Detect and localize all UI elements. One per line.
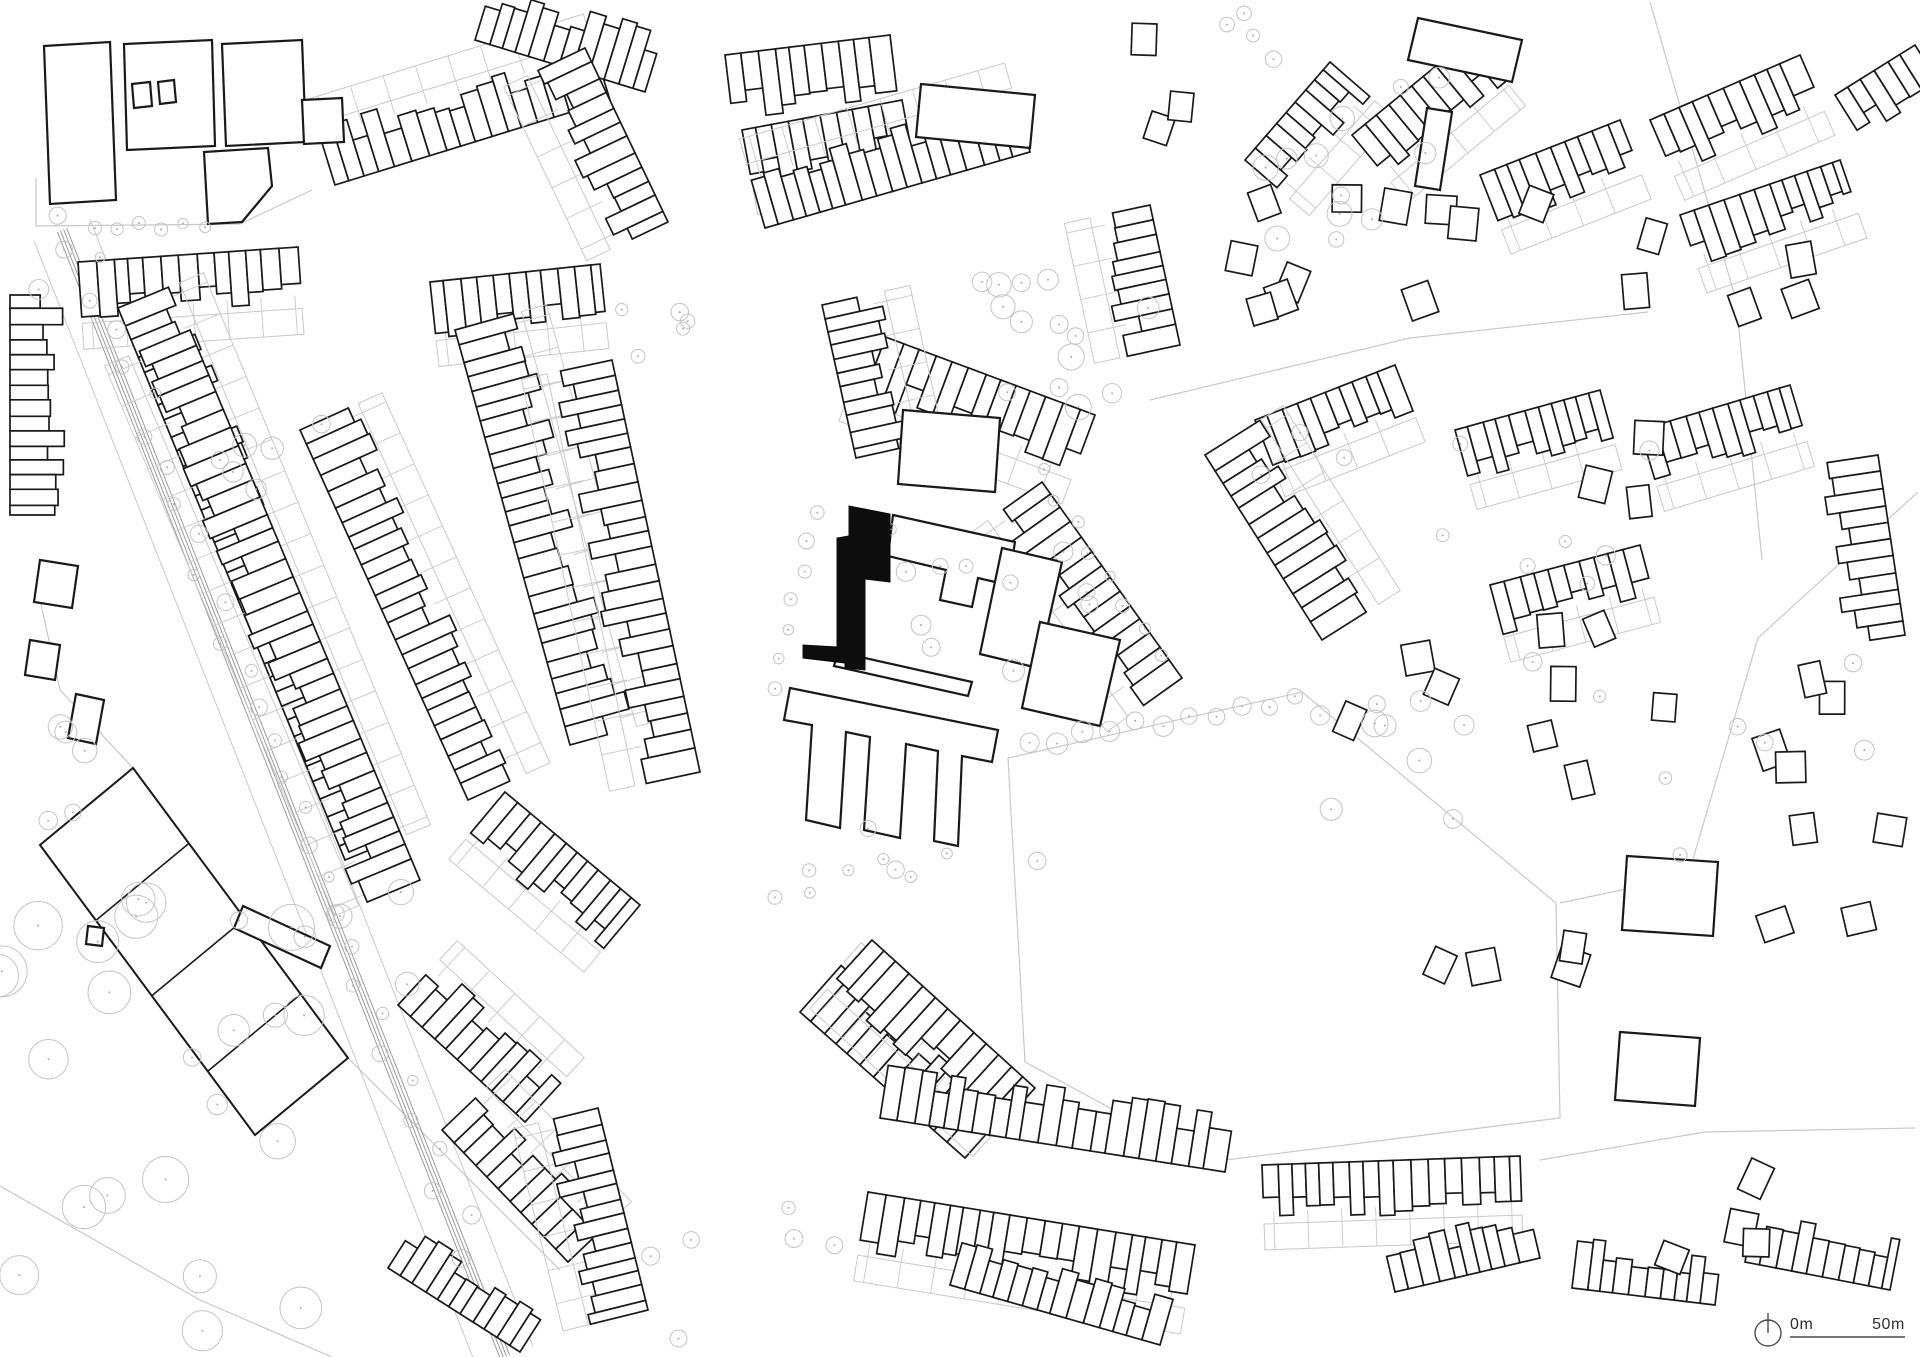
garden-divider	[1642, 588, 1652, 625]
site-building-layer	[803, 506, 890, 670]
tree-center-dot	[277, 1140, 279, 1142]
tree-center-dot	[1664, 777, 1666, 779]
garden-divider	[863, 1243, 869, 1282]
house	[1652, 693, 1677, 722]
tree-center-dot	[1294, 695, 1296, 697]
tree-center-dot	[63, 249, 65, 251]
garden-divider	[1375, 420, 1389, 456]
house	[260, 248, 281, 290]
house	[1841, 902, 1876, 937]
scale-start-label: 0m	[1790, 1316, 1813, 1333]
house	[1411, 1159, 1430, 1206]
tree-center-dot	[690, 1239, 692, 1241]
garden-divider	[295, 296, 298, 335]
garden-divider	[350, 86, 362, 124]
tree-center-dot	[790, 598, 792, 600]
garden-divider	[567, 201, 603, 218]
tree-center-dot	[352, 985, 354, 987]
terrace-row	[1680, 160, 1867, 293]
tree-center-dot	[1764, 742, 1766, 744]
tree-center-dot	[1056, 743, 1058, 745]
terrace-row	[10, 295, 64, 515]
house	[1248, 184, 1282, 221]
house	[1738, 1158, 1775, 1199]
tree-center-dot	[1852, 662, 1854, 664]
tree-center-dot	[1605, 554, 1607, 556]
tree-center-dot	[1286, 158, 1288, 160]
tree-center-dot	[232, 471, 234, 473]
tree-center-dot	[300, 1307, 302, 1309]
house	[10, 385, 48, 399]
house	[1637, 218, 1667, 255]
tree-center-dot	[920, 624, 922, 626]
tree-center-dot	[65, 731, 67, 733]
tree-center-dot	[774, 896, 776, 898]
garden-divider	[505, 742, 541, 758]
garden-divider	[1274, 1211, 1275, 1250]
house	[1401, 640, 1435, 676]
garden-divider	[420, 557, 456, 573]
garden-divider	[1506, 214, 1520, 250]
tree-center-dot	[787, 629, 789, 631]
tree-center-dot	[778, 658, 780, 660]
tree-center-dot	[1088, 603, 1090, 605]
tree-center-dot	[1335, 238, 1337, 240]
house	[10, 308, 63, 324]
house	[1393, 1160, 1413, 1211]
terrace-row	[1387, 1223, 1540, 1292]
tree-center-dot	[1109, 730, 1111, 732]
parcel-line	[0, 1186, 332, 1357]
house	[1776, 751, 1806, 783]
tree-center-dot	[47, 820, 49, 822]
house	[1494, 1156, 1511, 1202]
tree-icon	[0, 954, 19, 997]
large-building	[222, 40, 306, 146]
garden-divider	[1308, 1210, 1309, 1249]
tree-center-dot	[1420, 700, 1422, 702]
tree-center-dot	[1081, 731, 1083, 733]
terrace-row	[1825, 455, 1905, 640]
terraced-housing-layer	[10, 0, 1920, 1352]
tree-center-dot	[682, 328, 684, 330]
tree-center-dot	[94, 227, 96, 229]
house	[10, 446, 48, 460]
tree-center-dot	[1002, 306, 1004, 308]
large-building	[784, 688, 998, 846]
garden-divider	[1803, 106, 1819, 142]
tree-center-dot	[328, 876, 330, 878]
tree-center-dot	[97, 941, 99, 943]
large-building	[1408, 18, 1522, 82]
tree-center-dot	[939, 565, 941, 567]
tree-center-dot	[930, 646, 932, 648]
tree-center-dot	[258, 706, 260, 708]
garden-divider	[1410, 1206, 1411, 1245]
garden-divider	[415, 66, 427, 104]
tree-center-dot	[116, 228, 118, 230]
tree-center-dot	[1679, 854, 1681, 856]
tree-center-dot	[1188, 715, 1190, 717]
tree-center-dot	[1077, 406, 1079, 408]
large-building	[916, 84, 1035, 148]
tree-center-dot	[135, 916, 137, 918]
tree-center-dot	[1043, 468, 1045, 470]
tree-center-dot	[382, 1012, 384, 1014]
large-building	[898, 410, 1000, 492]
tree-center-dot	[1418, 760, 1420, 762]
tree-center-dot	[173, 503, 175, 505]
tree-center-dot	[37, 925, 39, 927]
house	[1123, 324, 1180, 356]
tree-center-dot	[788, 1207, 790, 1209]
tree-center-dot	[1273, 58, 1275, 60]
large-building	[44, 42, 116, 204]
large-building	[132, 82, 152, 108]
tree-center-dot	[910, 876, 912, 878]
house	[1700, 1273, 1719, 1305]
house	[161, 255, 181, 293]
tree-center-dot	[905, 571, 907, 573]
tree-center-dot	[274, 1014, 276, 1016]
house	[1379, 188, 1412, 225]
house	[279, 247, 301, 285]
garden-divider	[261, 298, 264, 337]
large-building	[68, 694, 104, 744]
tree-center-dot	[1058, 323, 1060, 325]
tree-center-dot	[1400, 86, 1402, 88]
tree-center-dot	[1376, 703, 1378, 705]
garden-divider	[1695, 462, 1706, 499]
tree-center-dot	[1144, 628, 1146, 630]
house	[10, 355, 54, 370]
tree-center-dot	[233, 1029, 235, 1031]
house	[1428, 1159, 1446, 1204]
terrace-row	[725, 35, 897, 115]
garden-divider	[1832, 209, 1844, 245]
terrace-row	[1835, 45, 1920, 130]
tree-center-dot	[351, 946, 353, 948]
parcel-line	[1008, 692, 1560, 1162]
tree-center-dot	[216, 1104, 218, 1106]
house	[1363, 1161, 1380, 1197]
tree-center-dot	[687, 320, 689, 322]
garden-strip	[1064, 218, 1119, 363]
tree-center-dot	[145, 902, 147, 904]
house	[1131, 23, 1157, 55]
tree-center-dot	[1215, 716, 1217, 718]
house	[1461, 1157, 1480, 1204]
garden-divider	[1081, 291, 1119, 299]
terrace-row	[1640, 385, 1814, 511]
house	[1401, 280, 1438, 321]
tree-center-dot	[1863, 749, 1865, 751]
tree-center-dot	[677, 1338, 679, 1340]
tree-center-dot	[72, 811, 74, 813]
tree-center-dot	[379, 1053, 381, 1055]
tree-center-dot	[47, 1058, 49, 1060]
terrace-row	[1572, 1239, 1719, 1305]
house	[1756, 906, 1794, 943]
large-building	[1022, 622, 1120, 726]
garden-divider	[148, 454, 185, 469]
tree-center-dot	[18, 1274, 20, 1276]
tree-center-dot	[1252, 35, 1254, 37]
tree-center-dot	[201, 1330, 203, 1332]
house	[10, 400, 50, 417]
tree-center-dot	[1087, 552, 1089, 554]
garden-divider	[537, 140, 573, 157]
house	[10, 340, 47, 355]
house	[1292, 1163, 1307, 1197]
tree-center-dot	[1109, 575, 1111, 577]
large-building	[1622, 856, 1718, 936]
garden-divider	[1728, 452, 1739, 489]
tree-center-dot	[1339, 213, 1341, 215]
tree-center-dot	[1036, 860, 1038, 862]
tree-center-dot	[224, 601, 226, 603]
tree-center-dot	[1020, 321, 1022, 323]
tree-center-dot	[107, 1194, 109, 1196]
tree-center-dot	[199, 1275, 201, 1277]
tree-center-dot	[412, 1079, 414, 1081]
tree-center-dot	[774, 688, 776, 690]
house	[1578, 465, 1612, 503]
tree-center-dot	[833, 1244, 835, 1246]
tree-center-dot	[867, 828, 869, 830]
tree-center-dot	[138, 222, 140, 224]
tree-center-dot	[99, 256, 101, 258]
tree-center-dot	[1134, 720, 1136, 722]
terrace-row	[880, 1065, 1231, 1172]
large-building	[204, 148, 272, 224]
terrace-row	[1490, 545, 1661, 662]
house	[1333, 1162, 1351, 1197]
tree-center-dot	[160, 229, 162, 231]
tree-center-dot	[1276, 238, 1278, 240]
tree-center-dot	[410, 1120, 412, 1122]
house	[1527, 720, 1557, 752]
tree-center-dot	[1299, 432, 1301, 434]
site-plan-page: 0m 50m	[0, 0, 1920, 1357]
tree-center-dot	[1268, 706, 1270, 708]
garden-divider	[1342, 1208, 1343, 1247]
tree-center-dot	[1226, 24, 1228, 26]
tree-center-dot	[806, 540, 808, 542]
tree-center-dot	[191, 1056, 193, 1058]
tree-center-dot	[847, 869, 849, 871]
garden-divider	[535, 901, 560, 931]
house	[1448, 206, 1479, 241]
large-building	[86, 926, 104, 946]
tree-center-dot	[808, 869, 810, 871]
tree-center-dot	[1147, 307, 1149, 309]
house	[1798, 661, 1827, 698]
tree-center-dot	[308, 844, 310, 846]
tree-center-dot	[291, 926, 293, 928]
house	[1564, 760, 1595, 799]
north-arrow-icon	[1755, 1313, 1781, 1346]
tree-center-dot	[320, 423, 322, 425]
tree-center-dot	[1648, 450, 1650, 452]
tree-center-dot	[304, 936, 306, 938]
garden-divider	[483, 857, 508, 887]
tree-center-dot	[1452, 818, 1454, 820]
tree-center-dot	[400, 891, 402, 893]
tree-center-dot	[1438, 77, 1440, 79]
house	[1743, 1228, 1770, 1257]
house	[1786, 241, 1817, 278]
tree-center-dot	[1737, 726, 1739, 728]
tree-center-dot	[650, 1255, 652, 1257]
garden-divider	[1309, 157, 1338, 182]
tree-center-dot	[57, 215, 59, 217]
tree-center-dot	[108, 991, 110, 993]
house	[1378, 1160, 1395, 1215]
tree-center-dot	[1029, 742, 1031, 744]
garden-divider	[1601, 177, 1615, 213]
house	[1319, 1163, 1335, 1206]
garden-divider	[477, 681, 513, 697]
tree-center-dot	[1527, 565, 1529, 567]
house	[1781, 279, 1819, 318]
house	[10, 505, 55, 515]
garden-divider	[1741, 133, 1757, 169]
house	[10, 295, 40, 308]
garden-divider	[1088, 325, 1126, 333]
tree-center-dot	[679, 311, 681, 313]
garden-divider	[462, 650, 498, 666]
tree-center-dot	[1070, 356, 1072, 358]
tree-center-dot	[439, 1148, 441, 1150]
tree-center-dot	[432, 1190, 434, 1192]
tree-center-dot	[1599, 695, 1601, 697]
house	[1728, 288, 1762, 327]
house	[1509, 1156, 1521, 1201]
garden-divider	[491, 711, 527, 727]
tree-center-dot	[1009, 582, 1011, 584]
tree-center-dot	[244, 444, 246, 446]
tree-center-dot	[1260, 474, 1262, 476]
garden-divider	[383, 76, 395, 114]
tree-center-dot	[1343, 457, 1345, 459]
tree-center-dot	[809, 892, 811, 894]
garden-divider	[931, 1254, 937, 1293]
house	[10, 431, 64, 447]
tree-center-dot	[1085, 591, 1087, 593]
garden-divider	[581, 232, 617, 249]
tree-center-dot	[305, 806, 307, 808]
large-building	[302, 98, 344, 144]
tree-center-dot	[280, 776, 282, 778]
tree-center-dot	[1053, 500, 1055, 502]
tree-center-dot	[255, 488, 257, 490]
garden-divider	[897, 1249, 903, 1288]
tree-center-dot	[83, 1206, 85, 1208]
tree-center-dot	[1160, 654, 1162, 656]
tree-center-dot	[182, 223, 184, 225]
tree-center-dot	[1384, 724, 1386, 726]
garden-divider	[1286, 183, 1315, 208]
large-building	[158, 80, 176, 104]
tree-center-dot	[204, 226, 206, 228]
terrace-row	[449, 792, 640, 972]
tree-center-dot	[1315, 155, 1317, 157]
garden-divider	[1067, 225, 1105, 233]
garden-divider	[556, 1294, 594, 1303]
parcel-line	[1540, 1128, 1915, 1160]
tree-center-dot	[1013, 670, 1015, 672]
tree-center-dot	[166, 466, 168, 468]
tree-center-dot	[1532, 661, 1534, 663]
tree-center-dot	[1162, 725, 1164, 727]
tree-center-dot	[154, 392, 156, 394]
tree-center-dot	[193, 574, 195, 576]
tree-center-dot	[303, 1014, 305, 1016]
house	[1479, 1157, 1495, 1193]
tree-center-dot	[1020, 282, 1022, 284]
garden-divider	[434, 588, 470, 604]
house	[1445, 1158, 1463, 1193]
garden-divider	[406, 526, 442, 542]
tree-center-dot	[1, 970, 3, 972]
house	[10, 475, 56, 490]
tree-center-dot	[335, 913, 337, 915]
garden-divider	[1509, 461, 1519, 498]
house	[1262, 1164, 1279, 1197]
garden-divider	[448, 56, 460, 94]
tree-center-dot	[219, 643, 221, 645]
tree-center-dot	[816, 512, 818, 514]
tree-center-dot	[1340, 194, 1342, 196]
tree-center-dot	[965, 565, 967, 567]
tree-center-dot	[460, 1257, 462, 1259]
house	[10, 460, 63, 475]
tree-center-dot	[1062, 551, 1064, 553]
tree-center-dot	[198, 533, 200, 535]
house	[1789, 813, 1817, 846]
tree-center-dot	[339, 915, 341, 917]
house	[1559, 930, 1586, 964]
tree-center-dot	[1330, 808, 1332, 810]
tree-center-dot	[946, 853, 948, 855]
garden-divider	[161, 485, 198, 500]
large-building	[34, 560, 78, 608]
garden-divider	[580, 313, 584, 352]
house	[10, 325, 43, 340]
large-building	[1615, 1032, 1700, 1106]
terrace-row	[1480, 120, 1651, 254]
house	[1423, 668, 1459, 705]
garden-divider	[332, 893, 369, 908]
tree-center-dot	[882, 858, 884, 860]
tree-center-dot	[998, 284, 1000, 286]
scale-end-label: 50m	[1872, 1316, 1905, 1333]
tree-center-dot	[1241, 705, 1243, 707]
terrace-row	[398, 941, 584, 1122]
garden-divider	[1542, 452, 1552, 489]
tree-center-dot	[115, 329, 117, 331]
tree-center-dot	[1122, 605, 1124, 607]
tree-center-dot	[1319, 714, 1321, 716]
garden-divider	[881, 328, 920, 337]
garden-divider	[1793, 432, 1804, 469]
tree-center-dot	[1243, 12, 1245, 14]
tree-center-dot	[1058, 387, 1060, 389]
tree-center-dot	[274, 739, 276, 741]
house	[1423, 946, 1457, 984]
large-building	[25, 640, 60, 680]
